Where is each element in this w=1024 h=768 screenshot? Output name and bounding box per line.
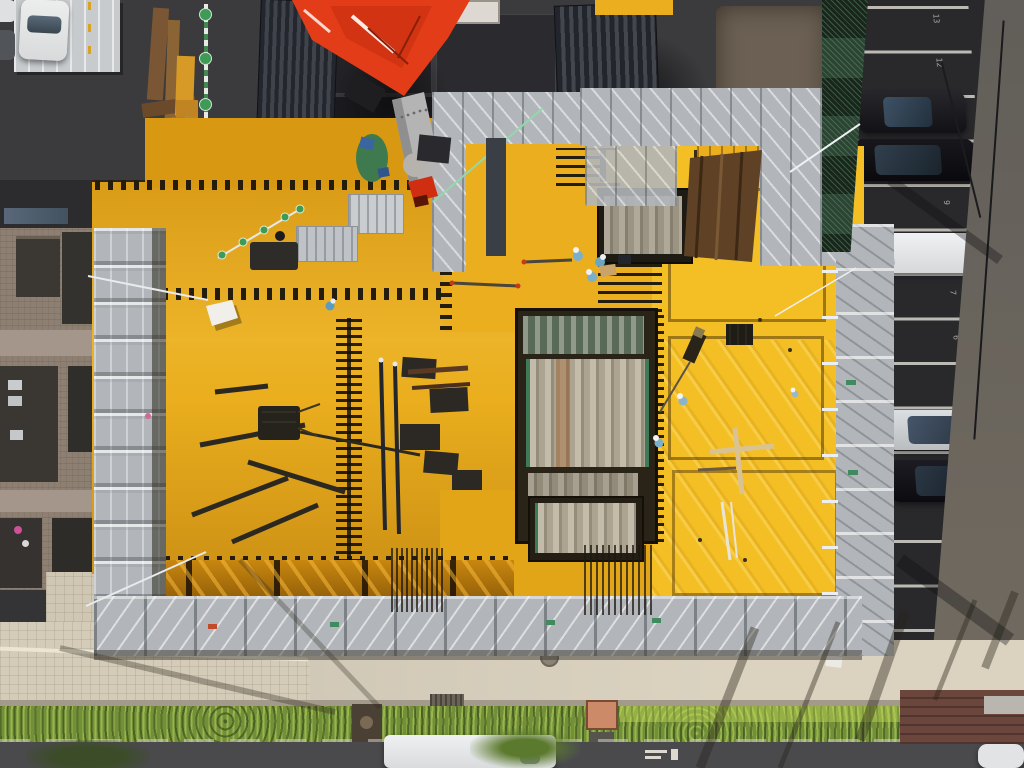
rebar-seam: [95, 180, 445, 190]
deck-block-outline: [668, 336, 824, 460]
car-glass: [874, 145, 942, 175]
formwork-panel-piece: [595, 0, 673, 15]
dark-car-partial: [0, 30, 15, 60]
scaffold-right-column: [836, 224, 894, 656]
balcony-bay: [16, 236, 60, 297]
facade-band: [0, 330, 97, 356]
laundry-item: [22, 540, 29, 547]
ac-unit: [8, 380, 22, 390]
car-glass: [883, 97, 933, 127]
parking-space-number: 9: [942, 200, 951, 205]
rust-streak: [556, 359, 570, 467]
walkway-shadow: [94, 650, 862, 660]
barrier-cap: [199, 52, 212, 65]
scaffold-block: [585, 146, 677, 206]
white-car-partial: [0, 0, 16, 22]
parked-black-suv: [854, 139, 977, 181]
facade-band: [0, 490, 97, 512]
street-white-car-partial: [978, 744, 1024, 768]
shaft-stacked-panels: [526, 359, 649, 467]
parking-space-number: 13: [931, 14, 941, 24]
tree-canopy: [470, 728, 580, 768]
scaffold-top-walkway: [432, 92, 584, 144]
roof-marking: [88, 2, 91, 68]
deck-block-outline: [672, 470, 838, 596]
scaffold-outriggers: [822, 224, 838, 656]
white-hatchback: [18, 0, 69, 61]
ac-unit: [8, 396, 22, 406]
steel-road-plate: [436, 14, 556, 100]
scaffold-gap-shadow: [152, 228, 166, 652]
rebar-seam: [150, 288, 442, 300]
core-shaft-pit-2: [528, 496, 644, 562]
barrier-cap: [199, 8, 212, 21]
rebar-rows: [598, 260, 662, 312]
corner-roof-light: [984, 696, 1024, 714]
laundry-item: [14, 526, 22, 534]
skylight: [4, 208, 68, 224]
ac-unit: [10, 430, 23, 440]
deck-top-strip: [145, 118, 445, 188]
scaffold-arm: [432, 140, 466, 272]
dark-equipment: [250, 242, 298, 270]
scaffold-bottom-walkway: [94, 596, 862, 656]
car-glass: [27, 15, 62, 34]
sign-box: [586, 700, 618, 730]
aerial-photo: 13 12 9 7 6 5 2 1: [0, 0, 1024, 768]
shaft-stacked-panels: [535, 503, 636, 553]
tree-trunk: [360, 716, 373, 729]
parking-space-number: 7: [948, 290, 957, 295]
tree-canopy: [26, 740, 150, 768]
sack-pallet: [450, 0, 500, 24]
steel-frame-stack: [296, 226, 358, 262]
barrier-cap: [199, 98, 212, 111]
shaft-top-panels: [523, 316, 644, 354]
